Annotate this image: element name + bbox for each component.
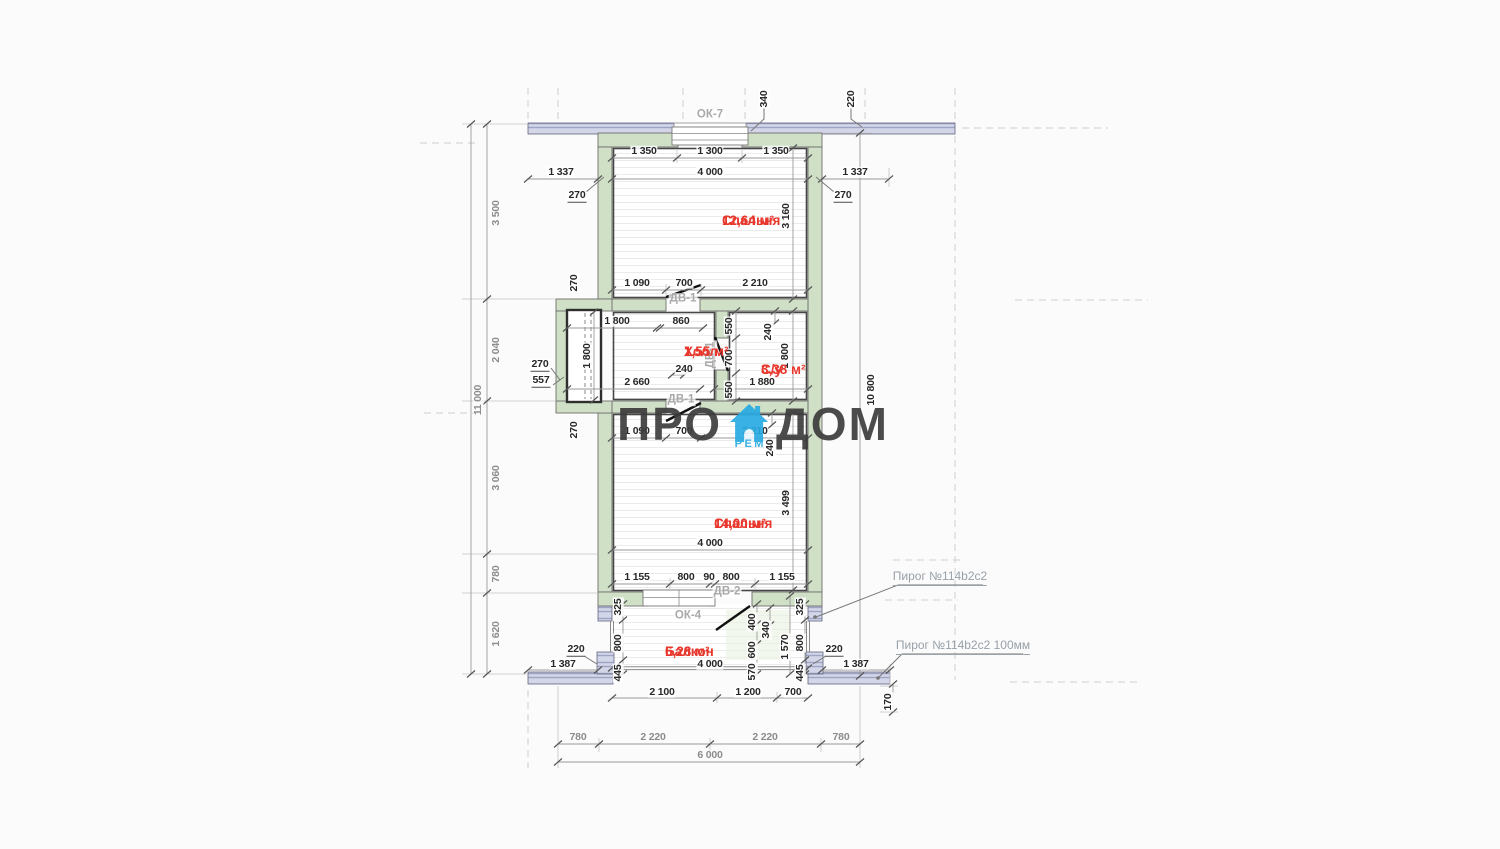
room-area: 14,00 м² <box>714 515 766 533</box>
room-area: 6,28 м² <box>665 643 710 661</box>
dim-label: 3 499 <box>781 489 792 516</box>
dim-label: 800 <box>613 634 624 653</box>
floor-plan-page: 3402201 3501 3001 3501 3374 0001 3372702… <box>0 0 1500 849</box>
room-area: 12,64 м² <box>722 212 774 230</box>
dim-label: 445 <box>795 664 806 683</box>
dim-label: 2 660 <box>623 377 650 388</box>
dim-label: 325 <box>795 598 806 617</box>
dim-label: 1 155 <box>768 572 795 583</box>
opening-tag: ОК-4 <box>674 610 702 622</box>
dim-label: 2 220 <box>751 732 778 743</box>
dim-label: 700 <box>675 278 694 289</box>
dim-label: 780 <box>832 732 851 743</box>
dim-label: 340 <box>759 90 770 109</box>
dim-label: 2 100 <box>648 687 675 698</box>
dim-label: 800 <box>795 634 806 653</box>
dim-label: 240 <box>675 364 694 375</box>
dim-label: 240 <box>763 323 774 342</box>
dim-label: 1 337 <box>547 167 574 178</box>
dim-label: 800 <box>677 572 696 583</box>
construction-note: Пирог №114b2c2 <box>893 570 987 586</box>
dim-label: 170 <box>883 693 894 712</box>
dim-label: 4 000 <box>696 538 723 549</box>
dim-label: 1 800 <box>603 316 630 327</box>
dim-label: 220 <box>846 90 857 109</box>
dim-label: 4 000 <box>696 167 723 178</box>
dim-label: 1 155 <box>623 572 650 583</box>
dim-label: 1 387 <box>549 659 576 670</box>
dim-label: 340 <box>761 621 772 640</box>
opening-tag: ДВ-1 <box>669 293 698 305</box>
opening-tag: ДВ-2 <box>713 586 742 598</box>
dim-label: 270 <box>834 190 853 203</box>
dim-label: 270 <box>569 274 580 293</box>
watermark-subtext: РЕМ <box>735 438 766 450</box>
dim-label: 90 <box>702 572 715 583</box>
watermark-text-left: ПРО <box>617 397 722 451</box>
dim-label: 3 500 <box>491 199 502 226</box>
dim-label: 220 <box>567 644 586 657</box>
dim-label: 3 160 <box>781 202 792 229</box>
dim-label: 800 <box>722 572 741 583</box>
dim-label: 700 <box>784 687 803 698</box>
room-area: 1,55 м² <box>684 343 729 361</box>
opening-tag: ОК-7 <box>696 109 724 121</box>
dim-label: 11 000 <box>473 384 484 416</box>
dim-label: 220 <box>825 644 844 657</box>
dim-label: 550 <box>724 317 735 336</box>
dim-label: 860 <box>672 316 691 327</box>
dim-label: 1 570 <box>780 633 791 660</box>
dim-label: 780 <box>491 565 502 584</box>
dim-label: 1 200 <box>734 687 761 698</box>
dim-label: 1 090 <box>623 278 650 289</box>
room-area: 3,38 м² <box>761 361 806 379</box>
dim-label: 1 620 <box>491 620 502 647</box>
dim-label: 270 <box>569 421 580 440</box>
dim-label: 1 350 <box>630 146 657 157</box>
dim-label: 1 337 <box>841 167 868 178</box>
construction-note: Пирог №114b2c2 100мм <box>896 639 1030 655</box>
dim-label: 2 210 <box>741 278 768 289</box>
dim-label: 445 <box>613 664 624 683</box>
dim-label: 600 <box>747 641 758 660</box>
dim-label: 1 387 <box>842 659 869 670</box>
dim-label: 325 <box>613 598 624 617</box>
dim-label: 6 000 <box>696 750 723 761</box>
dim-label: 3 060 <box>491 464 502 491</box>
dim-label: 557 <box>532 375 551 388</box>
dim-label: 1 300 <box>696 146 723 157</box>
dim-label: 2 220 <box>639 732 666 743</box>
dim-label: 780 <box>569 732 588 743</box>
watermark-logo: ПРО ДОМ РЕМ <box>617 397 889 451</box>
watermark-text-right: ДОМ <box>776 397 889 451</box>
dim-label: 270 <box>568 190 587 203</box>
dim-label: 2 040 <box>491 336 502 363</box>
dim-label: 1 350 <box>762 146 789 157</box>
dim-label: 570 <box>747 663 758 682</box>
dim-label: 270 <box>531 359 550 372</box>
dim-label: 1 800 <box>582 342 593 369</box>
dim-label: 400 <box>747 613 758 632</box>
